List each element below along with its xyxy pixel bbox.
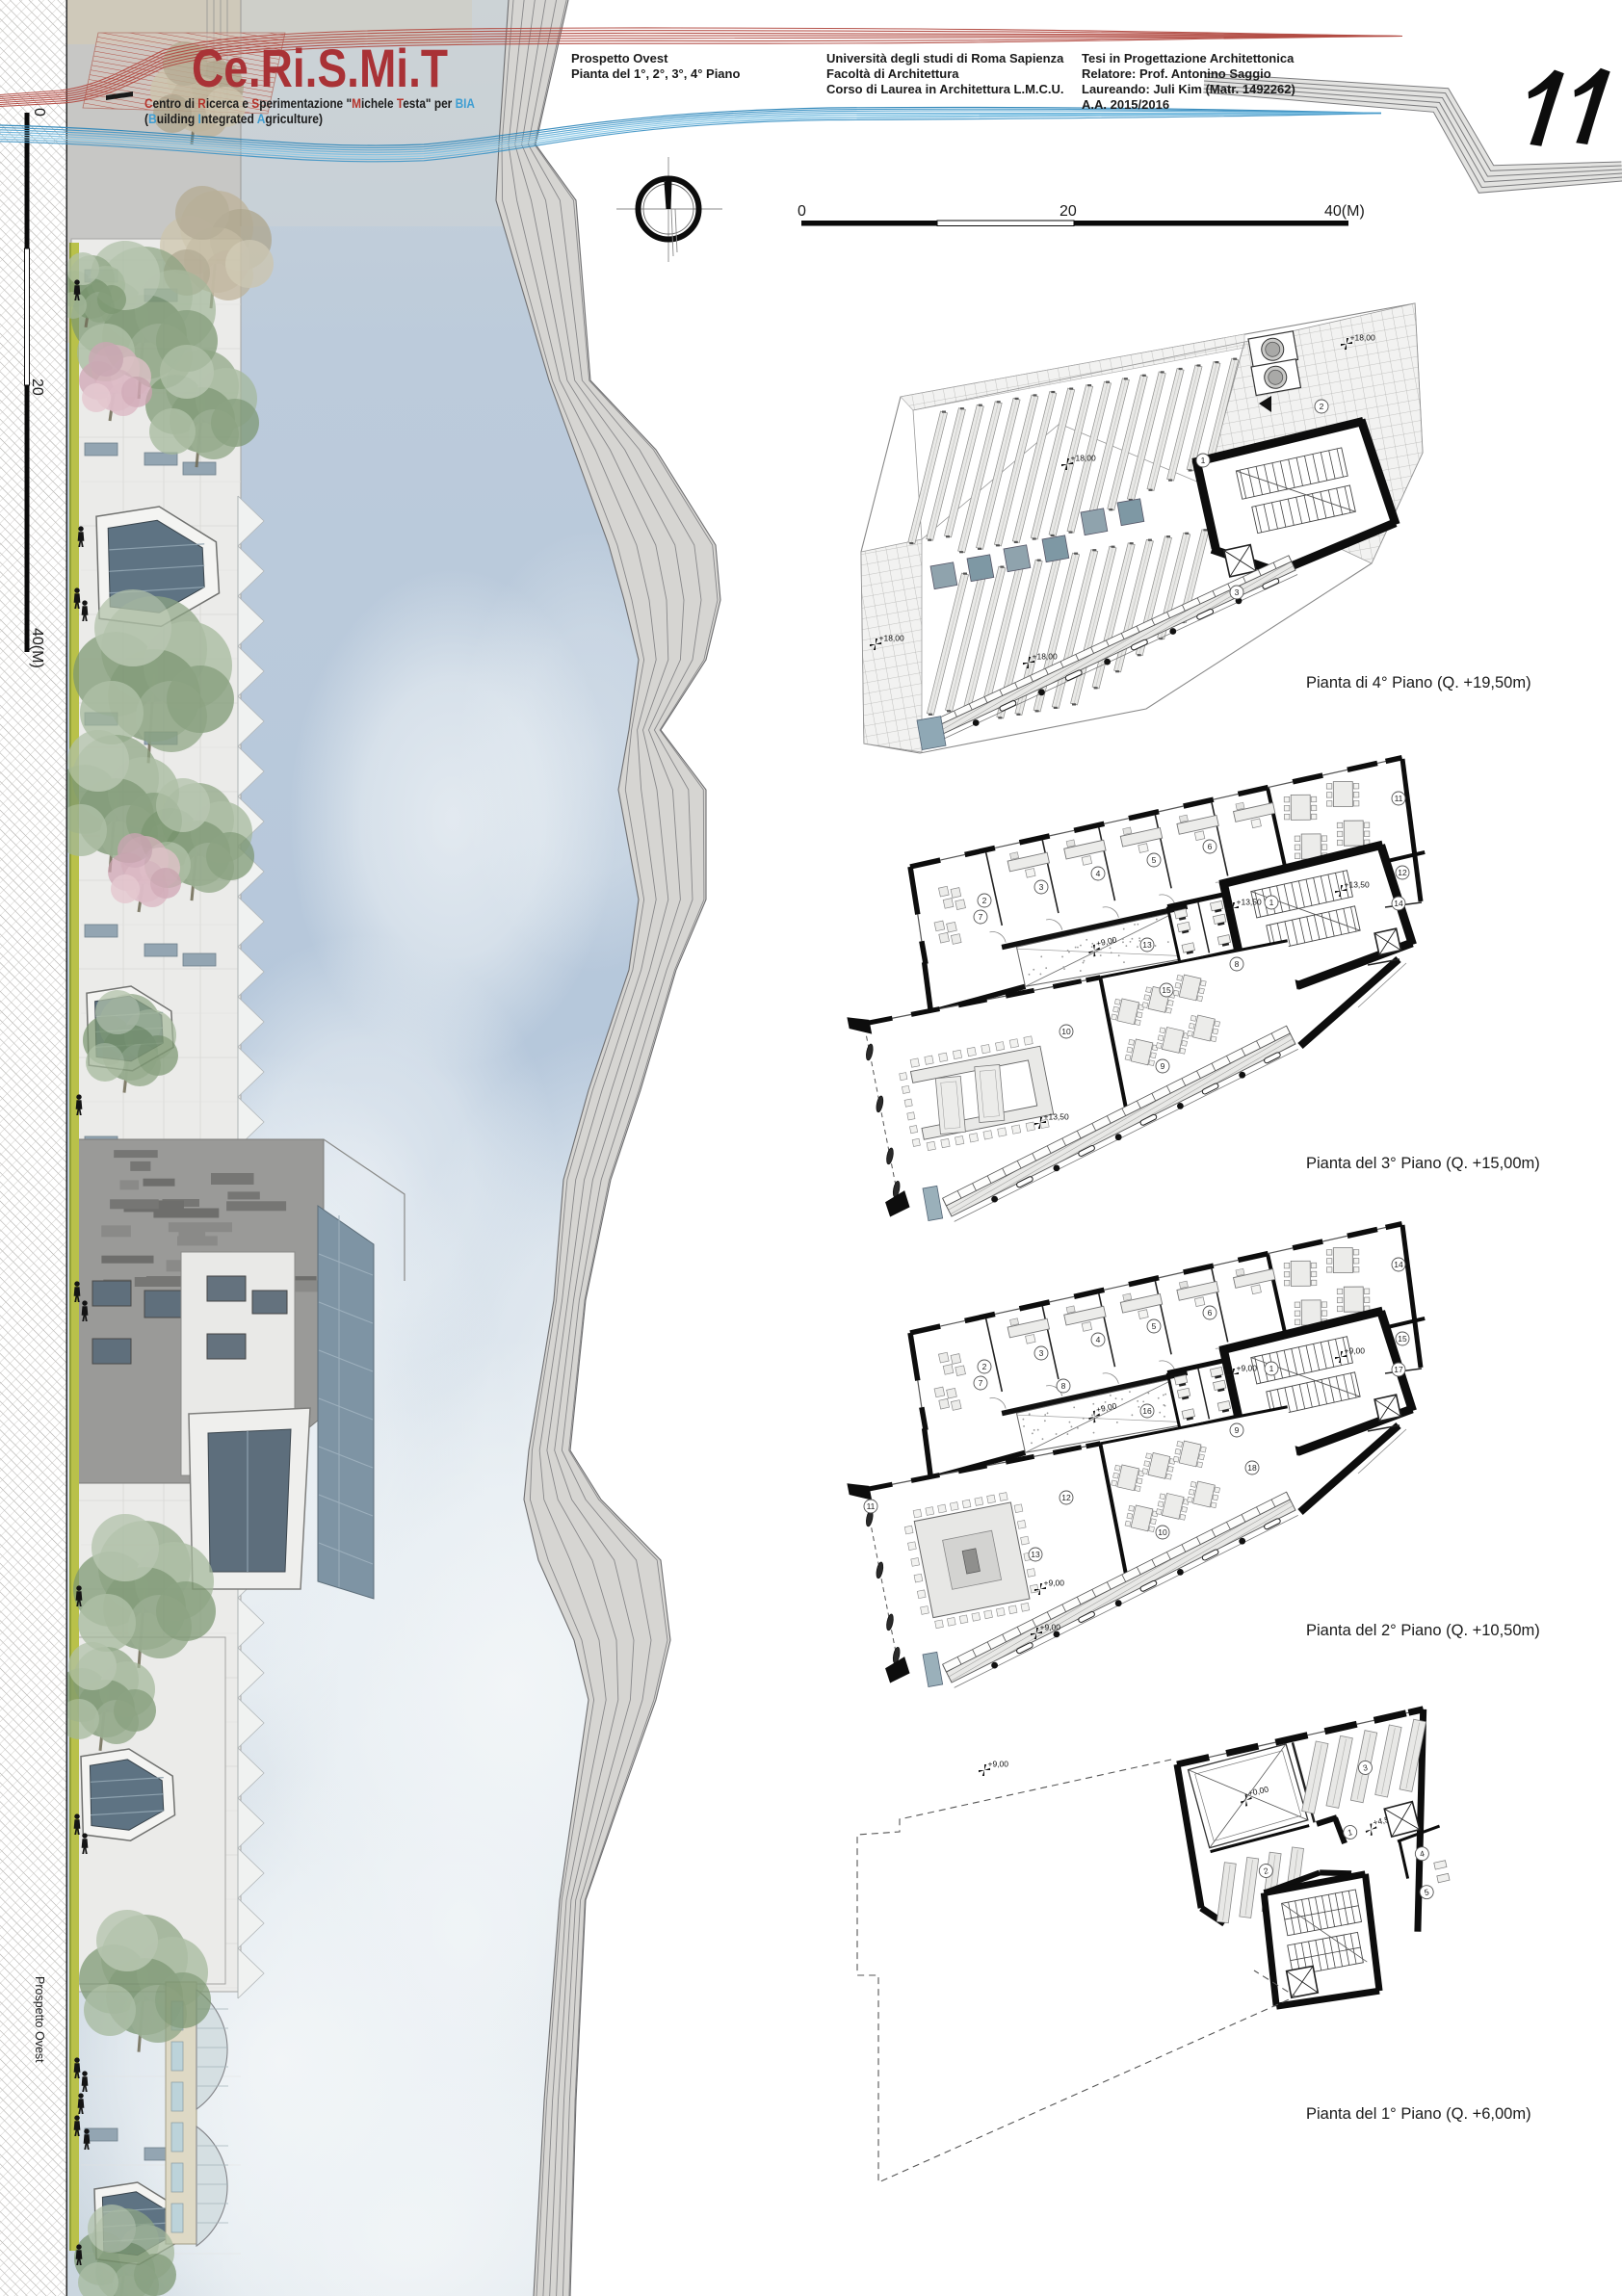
svg-text:7: 7 — [979, 912, 983, 922]
svg-text:+18,00: +18,00 — [1033, 652, 1059, 662]
svg-text:Centro di Ricerca e Sperimenta: Centro di Ricerca e Sperimentazione "Mic… — [144, 96, 475, 111]
svg-text:11: 11 — [1395, 794, 1403, 803]
svg-text:Università degli studi di Roma: Università degli studi di Roma Sapienza — [826, 51, 1064, 65]
svg-text:+13,50: +13,50 — [1237, 898, 1263, 907]
svg-text:Ce.Ri.S.Mi.T: Ce.Ri.S.Mi.T — [192, 38, 448, 98]
svg-text:4: 4 — [1096, 1335, 1101, 1344]
svg-text:1: 1 — [1201, 456, 1206, 465]
svg-text:Pianta del 2° Piano (Q. +10,50: Pianta del 2° Piano (Q. +10,50m) — [1306, 1622, 1540, 1639]
svg-text:+13,50: +13,50 — [1345, 880, 1371, 890]
svg-text:Pianta del 3° Piano (Q. +15,00: Pianta del 3° Piano (Q. +15,00m) — [1306, 1155, 1540, 1172]
svg-text:16: 16 — [1142, 1406, 1152, 1416]
svg-text:0: 0 — [798, 203, 806, 220]
svg-text:40(M): 40(M) — [29, 628, 45, 668]
svg-text:3: 3 — [1039, 1348, 1044, 1358]
svg-text:Prospetto Ovest: Prospetto Ovest — [571, 51, 668, 65]
svg-text:Pianta di 4° Piano (Q. +19,50m: Pianta di 4° Piano (Q. +19,50m) — [1306, 674, 1531, 691]
svg-text:13: 13 — [1142, 940, 1152, 950]
svg-text:4: 4 — [1096, 869, 1101, 878]
svg-text:+9,00: +9,00 — [1237, 1364, 1258, 1373]
svg-text:(Building Integrated Agricultu: (Building Integrated Agriculture) — [144, 112, 323, 126]
svg-text:13: 13 — [1031, 1550, 1040, 1559]
svg-text:2: 2 — [982, 1362, 987, 1371]
svg-text:Corso di Laurea in Architettur: Corso di Laurea in Architettura L.M.C.U. — [826, 82, 1064, 96]
svg-text:3: 3 — [1235, 587, 1240, 597]
svg-text:12: 12 — [1398, 868, 1407, 877]
svg-text:Relatore: Prof. Antonino Saggi: Relatore: Prof. Antonino Saggio — [1082, 66, 1271, 81]
svg-text:10: 10 — [1158, 1527, 1167, 1537]
svg-text:1: 1 — [1269, 898, 1274, 907]
svg-text:15: 15 — [1398, 1334, 1407, 1344]
svg-text:20: 20 — [29, 378, 45, 396]
svg-text:8: 8 — [1235, 959, 1240, 969]
svg-text:Pianta del 1° Piano (Q. +6,00m: Pianta del 1° Piano (Q. +6,00m) — [1306, 2105, 1531, 2123]
svg-text:Laureando: Juli Kim (Matr. 149: Laureando: Juli Kim (Matr. 1492262) — [1082, 82, 1295, 96]
svg-text:A.A. 2015/2016: A.A. 2015/2016 — [1082, 97, 1169, 112]
svg-text:8: 8 — [1061, 1381, 1066, 1391]
svg-text:10: 10 — [1061, 1027, 1071, 1036]
svg-text:9: 9 — [1235, 1425, 1240, 1435]
svg-text:15: 15 — [1162, 985, 1171, 995]
svg-text:12: 12 — [1061, 1493, 1071, 1502]
svg-text:Tesi in Progettazione Architet: Tesi in Progettazione Architettonica — [1082, 51, 1295, 65]
svg-text:0: 0 — [31, 108, 47, 117]
svg-text:Pianta del 1°, 2°, 3°, 4° Pian: Pianta del 1°, 2°, 3°, 4° Piano — [571, 66, 740, 81]
svg-text:5: 5 — [1152, 855, 1157, 865]
svg-text:Prospetto Ovest: Prospetto Ovest — [33, 1976, 46, 2063]
svg-text:+18,00: +18,00 — [1071, 454, 1097, 463]
svg-text:+9,00: +9,00 — [1044, 1578, 1065, 1588]
svg-text:7: 7 — [979, 1378, 983, 1388]
svg-text:18: 18 — [1247, 1463, 1257, 1473]
svg-text:11: 11 — [867, 1501, 876, 1511]
svg-text:17: 17 — [1394, 1365, 1403, 1374]
svg-text:6: 6 — [1208, 842, 1213, 851]
svg-text:40(M): 40(M) — [1324, 203, 1365, 220]
svg-text:3: 3 — [1039, 882, 1044, 892]
svg-text:+13,50: +13,50 — [1044, 1112, 1070, 1122]
svg-text:1: 1 — [1269, 1364, 1274, 1373]
svg-text:6: 6 — [1208, 1308, 1213, 1318]
svg-text:2: 2 — [1320, 402, 1324, 411]
svg-text:14: 14 — [1394, 1260, 1403, 1269]
svg-text:+9,00: +9,00 — [1345, 1346, 1366, 1356]
svg-text:+18,00: +18,00 — [879, 634, 905, 643]
svg-text:9: 9 — [1161, 1061, 1165, 1071]
svg-text:14: 14 — [1394, 899, 1403, 908]
svg-text:+9,00: +9,00 — [988, 1760, 1009, 1769]
svg-text:2: 2 — [982, 896, 987, 905]
svg-text:20: 20 — [1060, 203, 1077, 220]
svg-text:+9,00: +9,00 — [1040, 1623, 1061, 1632]
svg-text:Facoltà di Architettura: Facoltà di Architettura — [826, 66, 959, 81]
svg-text:+18,00: +18,00 — [1350, 333, 1376, 343]
svg-text:5: 5 — [1152, 1321, 1157, 1331]
